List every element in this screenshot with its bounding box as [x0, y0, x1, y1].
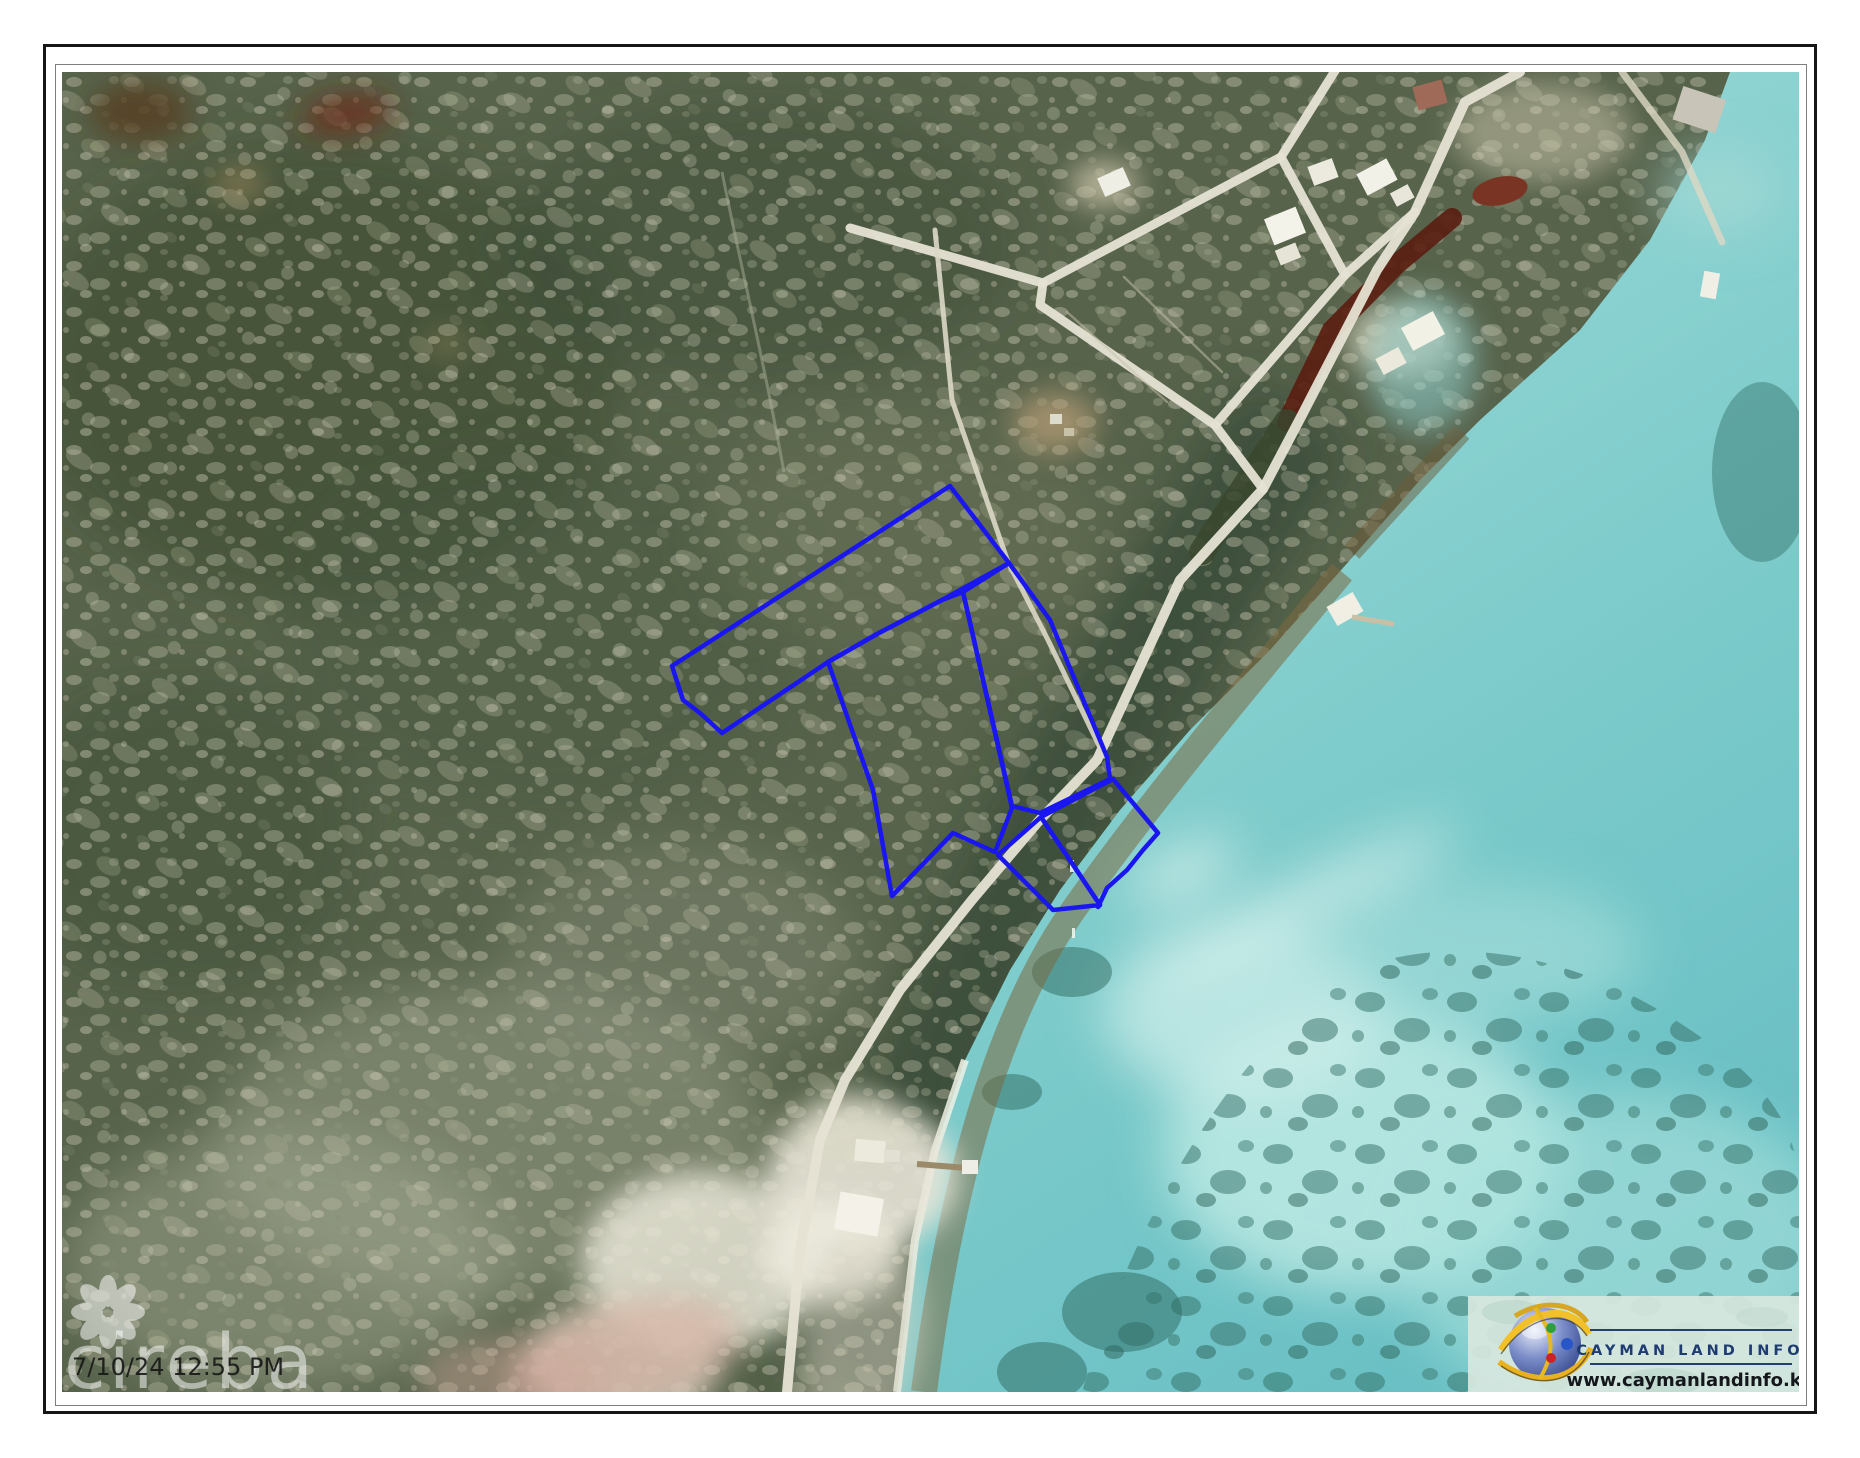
dock [917, 1164, 967, 1168]
timestamp-label: 7/10/24 12:55 PM [72, 1353, 284, 1381]
aerial-map: cireba 7/10/24 12:55 PM [62, 72, 1799, 1392]
cayman-land-info-logo: CAYMAN LAND INFO www.caymanlandinfo.ky [1468, 1296, 1799, 1392]
logo-title: CAYMAN LAND INFO [1576, 1343, 1799, 1359]
logo-website-link[interactable]: www.caymanlandinfo.ky [1566, 1370, 1799, 1391]
map-image: cireba 7/10/24 12:55 PM [62, 72, 1799, 1392]
channel-marker [1072, 928, 1075, 938]
map-sheet: cireba 7/10/24 12:55 PM [0, 0, 1860, 1458]
